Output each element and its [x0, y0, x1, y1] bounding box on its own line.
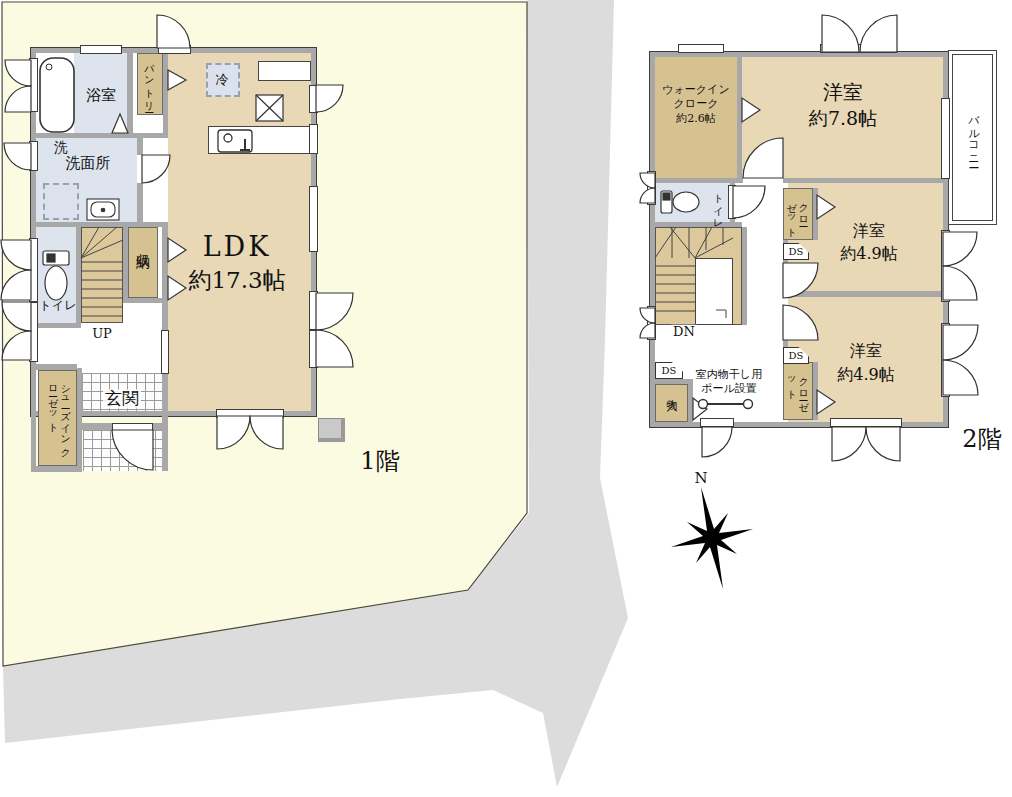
kitchen-counter	[208, 126, 311, 154]
washroom-label: 洗面所	[66, 155, 111, 172]
sliding-door	[161, 330, 169, 374]
bath-label: 浴室	[86, 87, 116, 104]
door-opening	[309, 291, 318, 330]
wall	[153, 423, 163, 430]
window	[29, 58, 38, 112]
dn-label: DN	[671, 325, 697, 340]
window	[820, 44, 897, 53]
washer-space	[43, 183, 79, 220]
entrance-label: 玄関	[103, 389, 141, 408]
room49a-size-label: 約4.9帖	[840, 245, 897, 263]
storage-label: 収納	[135, 243, 152, 245]
up-label: UP	[90, 327, 114, 342]
wall	[137, 183, 143, 227]
wall	[783, 178, 943, 183]
toilet-door	[728, 185, 736, 219]
compass-star-icon	[671, 487, 753, 589]
wall	[77, 368, 82, 472]
wall	[162, 374, 168, 411]
door-opening	[700, 418, 734, 427]
window	[80, 45, 122, 54]
washer-label: 洗	[54, 140, 68, 156]
wall	[737, 57, 742, 178]
wic-size-label: 約2.6帖	[676, 113, 716, 125]
ds-label: DS	[662, 365, 677, 376]
closet-upper-label: クローゼット	[787, 196, 809, 234]
floorplan-page: DS DS DS	[0, 0, 1012, 797]
door-opening	[309, 85, 318, 113]
wall	[123, 298, 162, 303]
window	[29, 141, 38, 171]
wall	[82, 423, 112, 430]
fridge-label: 冷	[216, 73, 229, 88]
ldk-size-label: 約17.3帖	[188, 268, 285, 294]
wall	[162, 303, 168, 330]
wall	[742, 227, 747, 325]
closet-lower-label: クローゼット	[787, 370, 809, 412]
exterior-step	[318, 418, 345, 442]
door-opening	[830, 418, 902, 427]
floor1-label: 1階	[360, 448, 399, 475]
wall	[123, 227, 128, 303]
ldk-name-label: LDK	[203, 232, 272, 262]
wall	[788, 291, 943, 297]
kitchen-cabinet	[258, 61, 311, 81]
compass-n-label: N	[694, 470, 707, 487]
balcony-label: バルコニー	[966, 108, 979, 163]
room78-name-label: 洋室	[823, 81, 863, 103]
window	[29, 238, 38, 302]
window	[309, 186, 318, 252]
wall	[655, 222, 742, 227]
stairs-up	[81, 227, 123, 323]
window	[941, 230, 950, 302]
floor2-label: 2階	[962, 426, 1001, 453]
toilet2f-label: トイレ	[712, 187, 724, 224]
door-opening	[158, 45, 191, 54]
wic-label-2: クローク	[674, 98, 719, 110]
floor1-plan	[31, 48, 316, 416]
window	[941, 323, 950, 397]
room49a-name-label: 洋室	[853, 222, 885, 240]
room49b-name-label: 洋室	[850, 342, 882, 360]
toilet1f-label: トイレ	[40, 299, 77, 312]
pantry-label: パントリー	[143, 57, 155, 107]
wall	[127, 53, 133, 133]
wall	[162, 227, 168, 303]
wall	[36, 133, 163, 138]
wall	[76, 227, 81, 323]
wall	[813, 362, 818, 420]
balcony-door	[941, 98, 950, 179]
door-opening	[216, 409, 284, 418]
wall	[813, 188, 818, 240]
wall	[31, 466, 82, 472]
ds-label: DS	[789, 246, 804, 257]
shoes-closet-label: シューズインクローゼット	[45, 378, 71, 462]
stair-void	[695, 258, 733, 325]
pole-note-line2: ポール設置	[701, 383, 757, 395]
wall	[162, 411, 168, 471]
porch-tile	[83, 430, 162, 471]
storage-closet	[128, 227, 158, 298]
wic-label-1: ウォークイン	[662, 84, 729, 96]
wall	[163, 48, 168, 138]
entrance-door	[112, 423, 153, 431]
window	[29, 302, 38, 362]
wall	[137, 137, 143, 155]
room78-size-label: 約7.8帖	[809, 108, 877, 129]
door-opening	[309, 330, 318, 368]
wall	[36, 222, 168, 227]
wall	[688, 384, 693, 422]
window	[647, 306, 656, 340]
window	[678, 44, 724, 53]
pole-note-line1: 室内物干し用	[696, 369, 762, 381]
monoire-label: 物入	[664, 390, 677, 392]
wall	[36, 323, 81, 328]
window	[309, 124, 318, 154]
wall	[31, 416, 36, 472]
window	[647, 171, 656, 205]
room49b-size-label: 約4.9帖	[837, 366, 894, 384]
ds-label: DS	[789, 350, 804, 361]
